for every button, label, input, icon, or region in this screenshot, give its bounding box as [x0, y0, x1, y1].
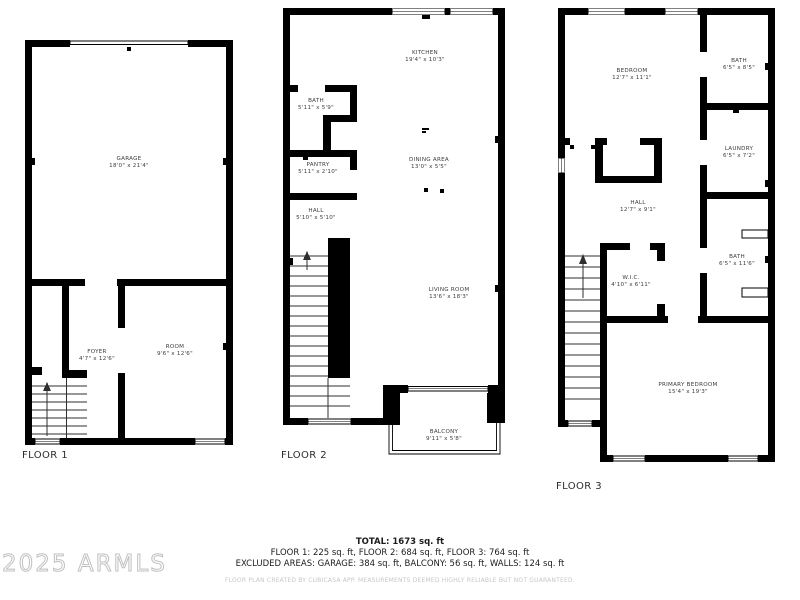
- floor1-caption: FLOOR 1: [22, 450, 68, 461]
- floor3-plan: BEDROOM 12'7" x 11'1" BATH 6'5" x 8'5" L…: [558, 8, 777, 466]
- room-label: KITCHEN: [412, 50, 438, 56]
- room-dims: 6'5" x 8'5": [723, 65, 755, 71]
- room-label: HALL: [308, 208, 324, 214]
- room-label: DINING AREA: [409, 157, 449, 163]
- armls-watermark: 2025 ARMLS: [2, 551, 167, 577]
- floor3-stairs: [565, 254, 600, 399]
- room-label: W.I.C.: [622, 275, 639, 281]
- room-dims: 19'4" x 10'3": [405, 57, 445, 63]
- stairs-up-arrow-icon: [43, 382, 51, 391]
- room-dims: 15'4" x 19'3": [668, 389, 708, 395]
- floor1-plan: GARAGE 18'0" x 21'4" FOYER 4'7" x 12'6" …: [25, 38, 235, 450]
- room-label: GARAGE: [117, 156, 142, 162]
- floor1-stairs: [32, 378, 87, 438]
- stairs-up-arrow-icon: [579, 254, 587, 264]
- room-dims: 12'7" x 9'1": [620, 207, 656, 213]
- room-label: FOYER: [87, 349, 106, 355]
- room-label: BEDROOM: [617, 68, 648, 74]
- room-dims: 9'11" x 5'8": [426, 436, 462, 442]
- floor1-room-labels: GARAGE 18'0" x 21'4" FOYER 4'7" x 12'6" …: [79, 156, 193, 362]
- room-label: LIVING ROOM: [429, 287, 470, 293]
- stairs-up-arrow-icon: [303, 251, 311, 260]
- room-dims: 4'7" x 12'6": [79, 356, 115, 362]
- room-label: BATH: [729, 254, 745, 260]
- room-dims: 13'0" x 5'5": [411, 164, 447, 170]
- room-label: BATH: [308, 98, 324, 104]
- total-area: TOTAL: 1673 sq. ft: [0, 537, 800, 548]
- room-dims: 13'6" x 18'3": [429, 294, 469, 300]
- floor1-garage-door: [70, 41, 188, 45]
- room-label: LAUNDRY: [725, 146, 754, 152]
- floor1-walls: [25, 40, 233, 445]
- disclaimer-text: FLOOR PLAN CREATED BY CUBICASA APP. MEAS…: [0, 577, 800, 584]
- room-label: BATH: [731, 58, 747, 64]
- floor3-windows: [559, 9, 758, 461]
- room-dims: 18'0" x 21'4": [109, 163, 149, 169]
- room-label: PRIMARY BEDROOM: [658, 382, 717, 388]
- floor2-caption: FLOOR 2: [281, 450, 327, 461]
- room-dims: 5'11" x 2'10": [298, 169, 338, 175]
- room-dims: 4'10" x 6'11": [611, 282, 651, 288]
- room-dims: 9'6" x 12'6": [157, 351, 193, 357]
- room-label: BALCONY: [430, 429, 459, 435]
- room-label: HALL: [630, 200, 646, 206]
- room-dims: 6'5" x 7'2": [723, 153, 755, 159]
- floor2-room-labels: KITCHEN 19'4" x 10'3" BATH 5'11" x 5'9" …: [296, 50, 469, 442]
- room-dims: 5'11" x 5'9": [298, 105, 334, 111]
- floor2-plan: KITCHEN 19'4" x 10'3" BATH 5'11" x 5'9" …: [283, 8, 505, 460]
- room-dims: 12'7" x 11'1": [612, 75, 652, 81]
- room-label: ROOM: [166, 344, 185, 350]
- room-dims: 5'10" x 5'10": [296, 215, 336, 221]
- room-dims: 6'5" x 11'6": [719, 261, 755, 267]
- room-label: PANTRY: [307, 162, 330, 168]
- floor-plan-page: GARAGE 18'0" x 21'4" FOYER 4'7" x 12'6" …: [0, 0, 800, 600]
- floor3-caption: FLOOR 3: [556, 481, 602, 492]
